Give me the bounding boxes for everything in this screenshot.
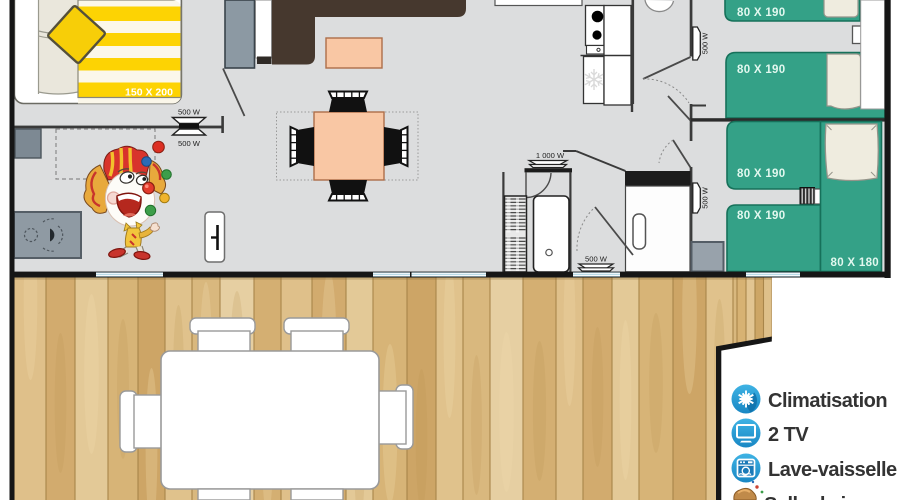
svg-text:1 000 W: 1 000 W (536, 151, 565, 160)
svg-text:500 W: 500 W (178, 139, 201, 148)
svg-text:500 W: 500 W (178, 108, 201, 117)
svg-text:500 W: 500 W (701, 187, 710, 208)
svg-text:Lave-vaisselle: Lave-vaisselle (768, 459, 897, 481)
svg-text:80 X 190: 80 X 190 (737, 168, 785, 180)
svg-text:500 W: 500 W (585, 255, 608, 264)
svg-text:2 TV: 2 TV (768, 424, 809, 446)
svg-text:80 X 190: 80 X 190 (737, 7, 785, 19)
svg-text:Salle de jeux: Salle de jeux (764, 494, 879, 500)
svg-text:150 X 200: 150 X 200 (125, 87, 173, 99)
svg-text:500 W: 500 W (701, 33, 710, 54)
svg-text:80 X 190: 80 X 190 (737, 210, 785, 222)
svg-text:Climatisation: Climatisation (768, 390, 887, 412)
svg-text:80 X 180: 80 X 180 (831, 257, 879, 269)
svg-text:80 X 190: 80 X 190 (737, 64, 785, 76)
